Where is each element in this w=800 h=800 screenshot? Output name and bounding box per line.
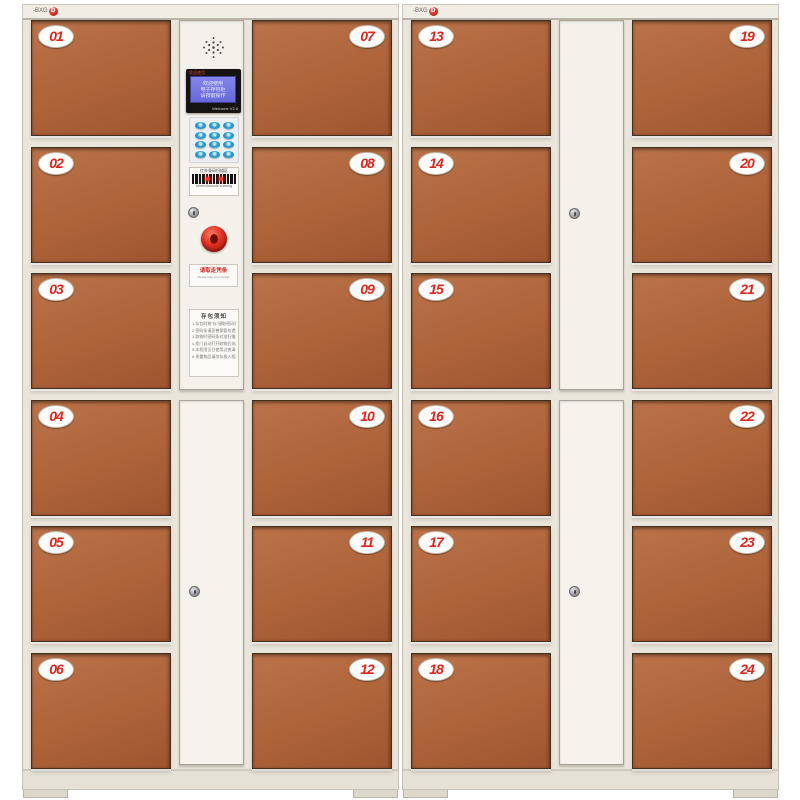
brand-logo-icon: D bbox=[49, 7, 58, 16]
door-number-badge: 02 bbox=[38, 152, 74, 175]
brand-logo-text: -BXG bbox=[33, 6, 48, 16]
instruction-title: 存包须知 bbox=[192, 313, 236, 321]
scanner-bottom-label: Infrared barcode scanning bbox=[192, 184, 235, 189]
door-number-badge: 21 bbox=[729, 278, 765, 301]
speaker-grille-icon bbox=[201, 35, 226, 65]
service-door-upper[interactable] bbox=[559, 20, 624, 390]
locker-door-22[interactable]: 22 bbox=[632, 400, 772, 516]
cabinet-foot bbox=[733, 790, 778, 798]
instruction-line: 5.本柜限当日使用过夜清柜 bbox=[192, 347, 236, 354]
door-number-badge: 11 bbox=[349, 531, 385, 554]
door-number-badge: 13 bbox=[418, 25, 454, 48]
keypad-button[interactable] bbox=[209, 132, 220, 139]
instruction-line: 6.贵重物品请勿存放入柜内 bbox=[192, 354, 236, 361]
door-number-badge: 09 bbox=[349, 278, 385, 301]
cabinet-foot bbox=[353, 790, 398, 798]
locker-door-19[interactable]: 19 bbox=[632, 20, 772, 136]
locker-door-18[interactable]: 18 bbox=[411, 653, 551, 769]
door-number-badge: 12 bbox=[349, 658, 385, 681]
barcode-strip bbox=[192, 174, 236, 184]
console-keyhole[interactable] bbox=[188, 207, 199, 218]
door-column-07-12: 07 08 09 10 11 12 bbox=[252, 20, 392, 769]
locker-door-04[interactable]: 04 bbox=[31, 400, 171, 516]
keypad-button[interactable] bbox=[209, 141, 220, 148]
cabinet-feet bbox=[22, 790, 399, 798]
cabinet-feet bbox=[402, 790, 779, 798]
service-door[interactable] bbox=[179, 400, 244, 765]
locker-door-23[interactable]: 23 bbox=[632, 526, 772, 642]
brand-logo: -BXG D bbox=[33, 6, 58, 16]
receipt-label: 请取走凭条 Please take your receipt bbox=[189, 264, 238, 287]
door-number-badge: 18 bbox=[418, 658, 454, 681]
instruction-line: 1.存包时按"存"键取密码条 bbox=[192, 321, 236, 328]
door-column-01-06: 01 02 03 04 05 06 bbox=[31, 20, 171, 769]
cabinet-unit-right: -BXG D 13 14 15 16 17 18 bbox=[402, 4, 779, 798]
door-number-badge: 05 bbox=[38, 531, 74, 554]
door-number-badge: 06 bbox=[38, 658, 74, 681]
locker-door-24[interactable]: 24 bbox=[632, 653, 772, 769]
door-number-badge: 03 bbox=[38, 278, 74, 301]
service-door-keyhole[interactable] bbox=[189, 586, 200, 597]
emergency-red-button[interactable] bbox=[201, 226, 227, 252]
door-number-badge: 15 bbox=[418, 278, 454, 301]
door-number-badge: 10 bbox=[349, 405, 385, 428]
cabinet-body: 01 02 03 04 05 06 bbox=[22, 20, 399, 769]
locker-door-15[interactable]: 15 bbox=[411, 273, 551, 389]
locker-door-12[interactable]: 12 bbox=[252, 653, 392, 769]
lcd-screen: 欢迎使用 电子存包柜 请按键操作 bbox=[190, 76, 236, 103]
service-door-keyhole[interactable] bbox=[569, 586, 580, 597]
door-number-badge: 22 bbox=[729, 405, 765, 428]
lcd-bezel-label: 欢迎使用 bbox=[189, 70, 205, 75]
door-column-13-18: 13 14 15 16 17 18 bbox=[411, 20, 551, 769]
cabinet-foot bbox=[403, 790, 448, 798]
door-number-badge: 01 bbox=[38, 25, 74, 48]
cabinet-body: 13 14 15 16 17 18 19 20 21 22 23 bbox=[402, 20, 779, 769]
keypad-button[interactable] bbox=[209, 122, 220, 129]
locker-door-13[interactable]: 13 bbox=[411, 20, 551, 136]
locker-door-02[interactable]: 02 bbox=[31, 147, 171, 263]
keypad-button[interactable] bbox=[223, 141, 234, 148]
door-number-badge: 23 bbox=[729, 531, 765, 554]
locker-door-05[interactable]: 05 bbox=[31, 526, 171, 642]
cabinet-top-band: -BXG D bbox=[22, 4, 399, 20]
instruction-sticker: 存包须知 1.存包时按"存"键取密码条 2.密码条请妥善保管勿遗失 3.取物时密… bbox=[189, 309, 239, 377]
locker-door-16[interactable]: 16 bbox=[411, 400, 551, 516]
locker-product-image: -BXG D 01 02 03 04 05 06 bbox=[0, 0, 800, 800]
locker-door-01[interactable]: 01 bbox=[31, 20, 171, 136]
door-number-badge: 04 bbox=[38, 405, 74, 428]
door-number-badge: 07 bbox=[349, 25, 385, 48]
cabinet-plinth bbox=[22, 769, 399, 790]
door-number-badge: 17 bbox=[418, 531, 454, 554]
locker-door-17[interactable]: 17 bbox=[411, 526, 551, 642]
door-number-badge: 20 bbox=[729, 152, 765, 175]
locker-door-10[interactable]: 10 bbox=[252, 400, 392, 516]
brand-logo-icon: D bbox=[429, 7, 438, 16]
numeric-keypad bbox=[189, 117, 239, 163]
receipt-label-text: 请取走凭条 bbox=[190, 268, 237, 275]
brand-logo-text: -BXG bbox=[413, 6, 428, 16]
keypad-button[interactable] bbox=[195, 151, 206, 158]
control-console: 欢迎使用 欢迎使用 电子存包柜 请按键操作 Welcome V2.0 bbox=[179, 20, 244, 390]
keypad-button[interactable] bbox=[223, 122, 234, 129]
keypad-button[interactable] bbox=[195, 132, 206, 139]
keypad-button[interactable] bbox=[223, 151, 234, 158]
locker-door-21[interactable]: 21 bbox=[632, 273, 772, 389]
door-number-badge: 14 bbox=[418, 152, 454, 175]
locker-door-09[interactable]: 09 bbox=[252, 273, 392, 389]
locker-door-08[interactable]: 08 bbox=[252, 147, 392, 263]
instruction-line: 3.取物时密码条对准扫描口 bbox=[192, 334, 236, 341]
locker-door-03[interactable]: 03 bbox=[31, 273, 171, 389]
door-number-badge: 19 bbox=[729, 25, 765, 48]
locker-door-11[interactable]: 11 bbox=[252, 526, 392, 642]
lcd-footer-text: Welcome V2.0 bbox=[212, 106, 238, 111]
scanner-red-light bbox=[206, 177, 210, 181]
cabinet-top-band: -BXG D bbox=[402, 4, 779, 20]
keypad-button[interactable] bbox=[223, 132, 234, 139]
keypad-button[interactable] bbox=[195, 122, 206, 129]
door-number-badge: 16 bbox=[418, 405, 454, 428]
door-column-19-24: 19 20 21 22 23 24 bbox=[632, 20, 772, 769]
cabinet-foot bbox=[23, 790, 68, 798]
locker-door-14[interactable]: 14 bbox=[411, 147, 551, 263]
service-door-keyhole[interactable] bbox=[569, 208, 580, 219]
receipt-label-subtext: Please take your receipt bbox=[194, 275, 234, 279]
locker-door-20[interactable]: 20 bbox=[632, 147, 772, 263]
scanner-red-light bbox=[219, 177, 223, 181]
barcode-scanner[interactable]: 红外条码扫描区 Infrared barcode scanning bbox=[189, 167, 239, 196]
keypad-button[interactable] bbox=[209, 151, 220, 158]
cabinet-unit-left: -BXG D 01 02 03 04 05 06 bbox=[22, 4, 399, 798]
service-door-lower[interactable] bbox=[559, 400, 624, 765]
locker-door-07[interactable]: 07 bbox=[252, 20, 392, 136]
lcd-text-line: 请按键操作 bbox=[200, 93, 225, 99]
brand-logo: -BXG D bbox=[413, 6, 438, 16]
lcd-display-module: 欢迎使用 欢迎使用 电子存包柜 请按键操作 Welcome V2.0 bbox=[186, 69, 241, 113]
locker-door-06[interactable]: 06 bbox=[31, 653, 171, 769]
door-number-badge: 08 bbox=[349, 152, 385, 175]
cabinet-plinth bbox=[402, 769, 779, 790]
keypad-button[interactable] bbox=[195, 141, 206, 148]
door-number-badge: 24 bbox=[729, 658, 765, 681]
